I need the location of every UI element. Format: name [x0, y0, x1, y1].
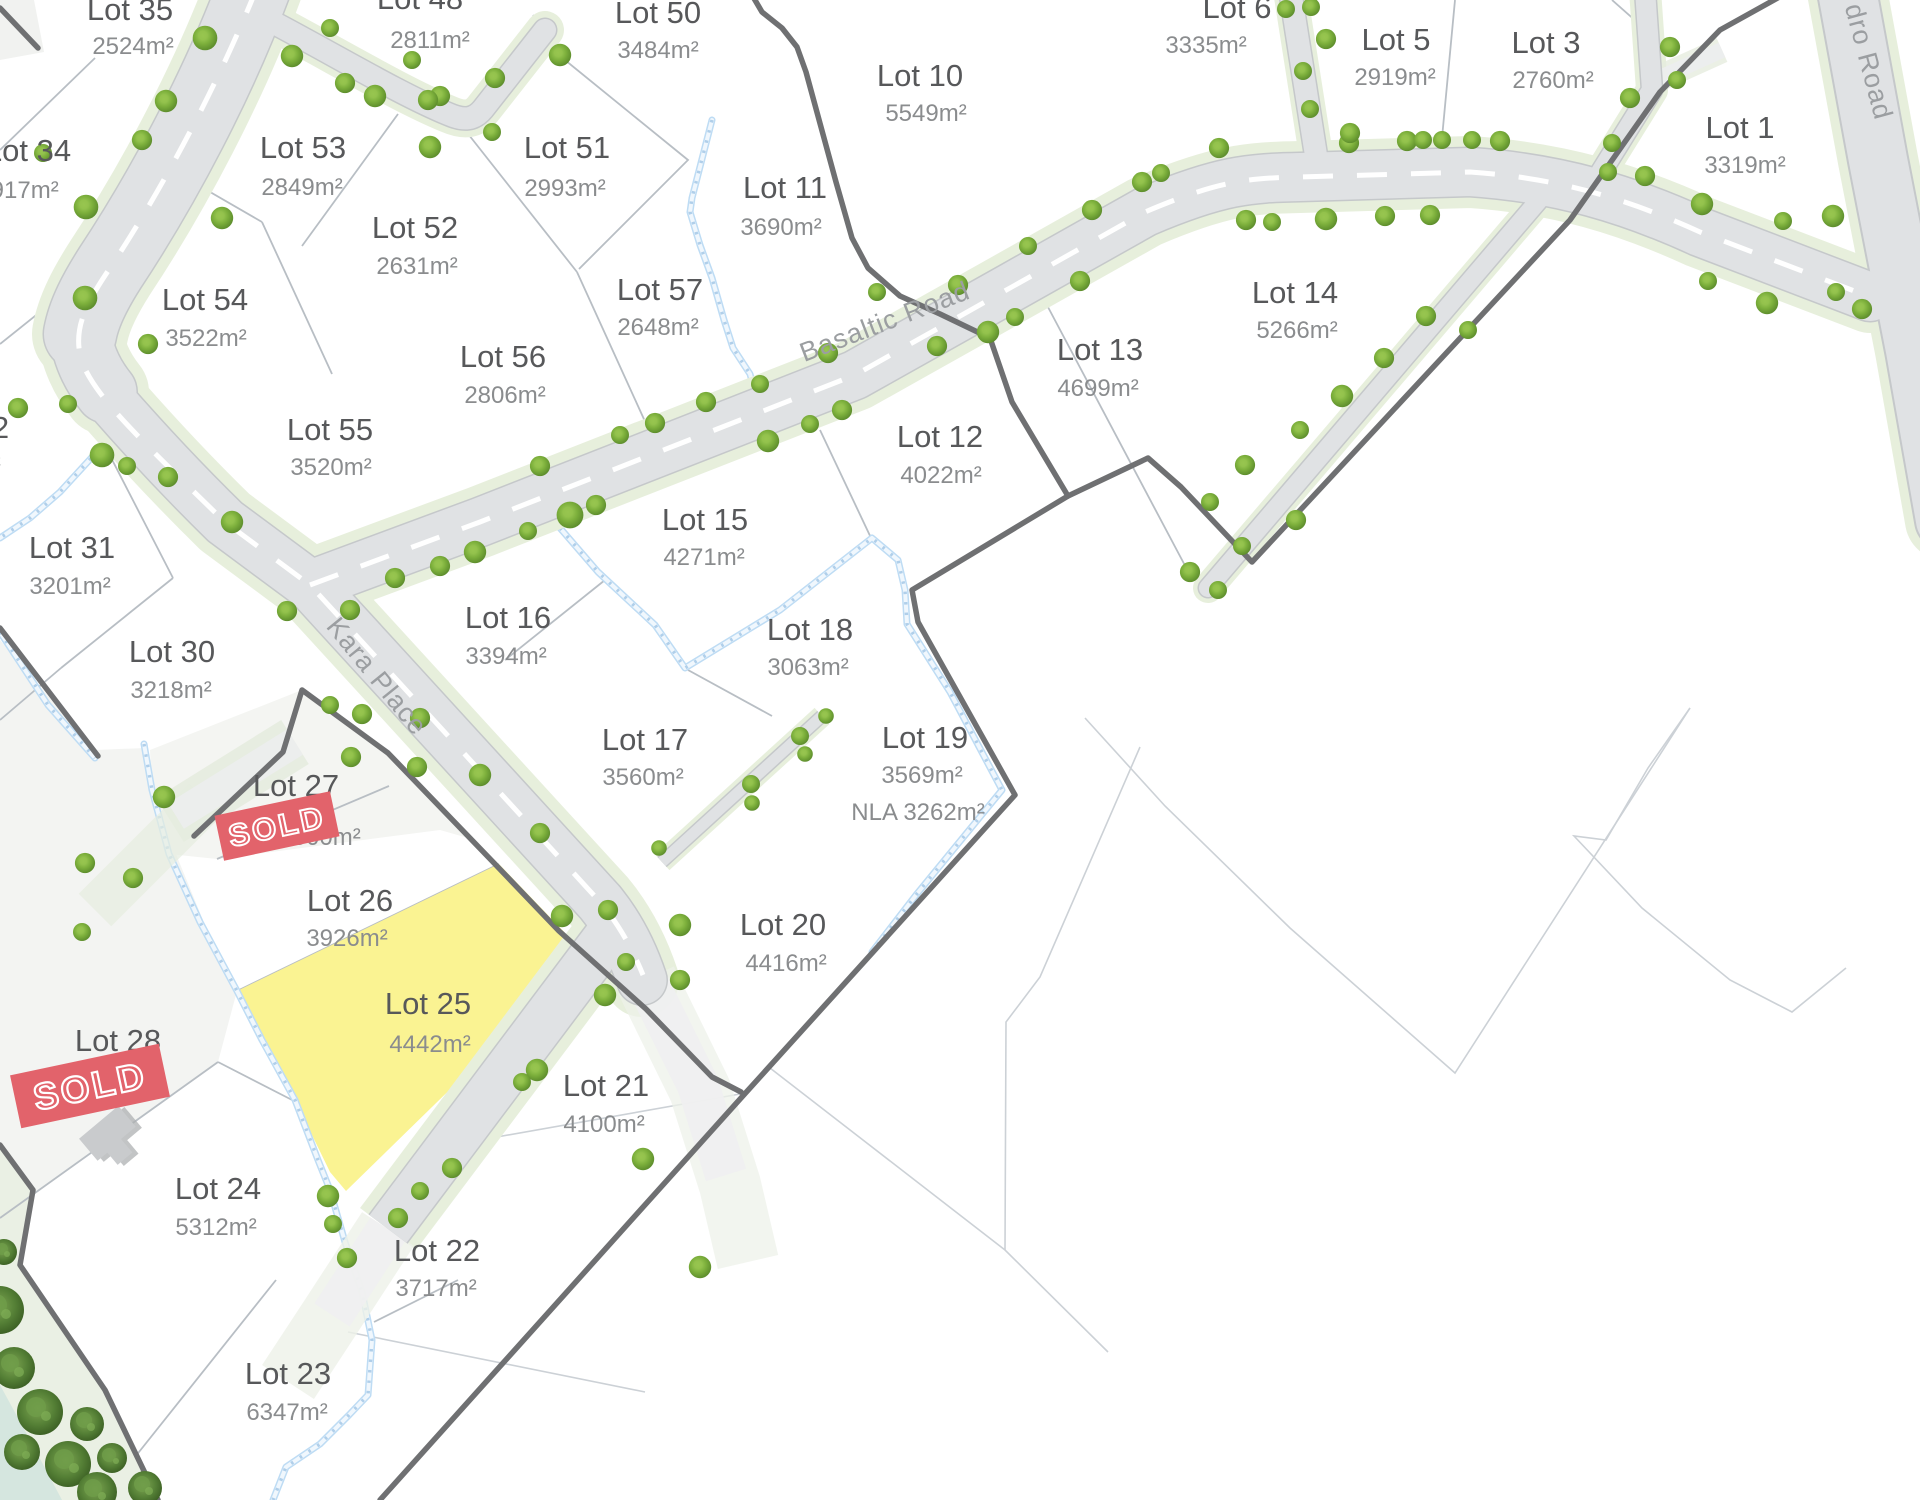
svg-text:4022m²: 4022m²	[900, 462, 981, 489]
svg-text:3520m²: 3520m²	[290, 454, 371, 481]
svg-text:5312m²: 5312m²	[175, 1214, 256, 1241]
svg-text:3063m²: 3063m²	[767, 654, 848, 681]
svg-text:3926m²: 3926m²	[306, 925, 387, 952]
svg-text:2993m²: 2993m²	[524, 175, 605, 202]
svg-text:2919m²: 2919m²	[1354, 64, 1435, 91]
svg-text:2602m²: 2602m²	[0, 451, 1, 478]
svg-text:5266m²: 5266m²	[1256, 317, 1337, 344]
svg-text:Lot 21: Lot 21	[563, 1068, 649, 1103]
svg-text:Lot 30: Lot 30	[129, 634, 215, 669]
svg-text:Lot 13: Lot 13	[1057, 332, 1143, 367]
svg-text:Lot 12: Lot 12	[897, 419, 983, 454]
svg-text:Lot 1: Lot 1	[1706, 110, 1775, 145]
svg-text:Lot 31: Lot 31	[29, 530, 115, 565]
svg-text:Lot 10: Lot 10	[877, 58, 963, 93]
svg-text:NLA 3262m²: NLA 3262m²	[851, 799, 984, 826]
svg-text:Lot 56: Lot 56	[460, 339, 546, 374]
svg-text:Lot 35: Lot 35	[87, 0, 173, 27]
svg-text:Lot 34: Lot 34	[0, 133, 71, 168]
svg-text:2811m²: 2811m²	[390, 27, 470, 54]
svg-text:4699m²: 4699m²	[1057, 375, 1138, 402]
svg-text:Lot 50: Lot 50	[615, 0, 701, 30]
svg-text:2917m²: 2917m²	[0, 177, 59, 204]
svg-text:Lot 57: Lot 57	[617, 272, 703, 307]
svg-text:Lot 19: Lot 19	[882, 720, 968, 755]
svg-text:Lot 32: Lot 32	[0, 410, 9, 445]
svg-text:3569m²: 3569m²	[881, 762, 962, 789]
svg-text:Lot 26: Lot 26	[307, 883, 393, 918]
svg-text:Lot 3: Lot 3	[1512, 25, 1581, 60]
svg-text:Lot 25: Lot 25	[385, 986, 471, 1021]
svg-text:2849m²: 2849m²	[261, 174, 342, 201]
svg-text:3522m²: 3522m²	[165, 325, 246, 352]
svg-text:3218m²: 3218m²	[130, 677, 211, 704]
svg-text:4442m²: 4442m²	[389, 1031, 470, 1058]
svg-text:3717m²: 3717m²	[395, 1275, 476, 1302]
svg-text:Lot 22: Lot 22	[394, 1233, 480, 1268]
svg-text:3690m²: 3690m²	[740, 214, 821, 241]
svg-text:Lot 11: Lot 11	[743, 170, 827, 205]
svg-text:3201m²: 3201m²	[29, 573, 110, 600]
svg-text:2631m²: 2631m²	[376, 253, 457, 280]
svg-text:Lot 24: Lot 24	[175, 1171, 261, 1206]
svg-text:2806m²: 2806m²	[464, 382, 545, 409]
svg-text:5549m²: 5549m²	[885, 100, 966, 127]
svg-text:Lot 16: Lot 16	[465, 600, 551, 635]
svg-text:Lot 54: Lot 54	[162, 282, 248, 317]
svg-text:Lot 23: Lot 23	[245, 1356, 331, 1391]
svg-text:3560m²: 3560m²	[602, 764, 683, 791]
svg-text:2760m²: 2760m²	[1512, 67, 1593, 94]
svg-text:Lot 15: Lot 15	[662, 502, 748, 537]
svg-text:Lot 55: Lot 55	[287, 412, 373, 447]
svg-text:4416m²: 4416m²	[745, 950, 826, 977]
svg-text:Lot 48: Lot 48	[377, 0, 463, 16]
svg-text:Lot 52: Lot 52	[372, 210, 458, 245]
svg-text:Lot 20: Lot 20	[740, 907, 826, 942]
svg-text:Lot 5: Lot 5	[1362, 22, 1431, 57]
svg-text:3335m²: 3335m²	[1165, 32, 1246, 59]
svg-text:3394m²: 3394m²	[465, 643, 546, 670]
svg-text:Lot 18: Lot 18	[767, 612, 853, 647]
svg-text:6347m²: 6347m²	[246, 1399, 327, 1426]
svg-text:2524m²: 2524m²	[92, 33, 173, 60]
svg-text:4100m²: 4100m²	[563, 1111, 644, 1138]
svg-text:Lot 14: Lot 14	[1252, 275, 1338, 310]
svg-text:2648m²: 2648m²	[617, 314, 698, 341]
svg-text:Lot 17: Lot 17	[602, 722, 688, 757]
svg-text:3484m²: 3484m²	[617, 37, 698, 64]
svg-text:Lot 6: Lot 6	[1203, 0, 1272, 25]
svg-text:Lot 51: Lot 51	[524, 130, 610, 165]
svg-text:3319m²: 3319m²	[1704, 152, 1785, 179]
svg-text:Lot 53: Lot 53	[260, 130, 346, 165]
svg-text:4271m²: 4271m²	[663, 544, 744, 571]
